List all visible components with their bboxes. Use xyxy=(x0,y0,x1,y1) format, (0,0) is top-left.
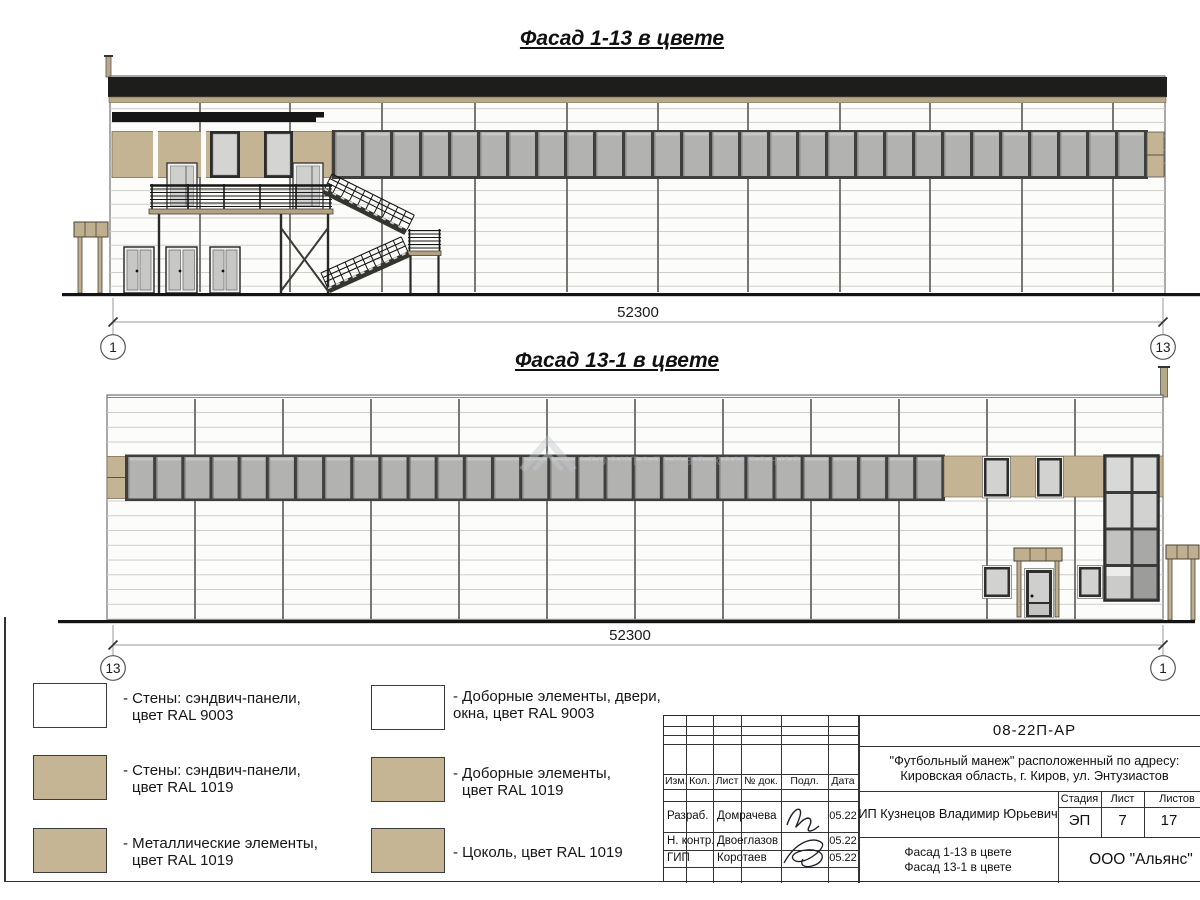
legend-label: - Стены: сэндвич-панели,цвет RAL 9003 xyxy=(123,691,301,724)
facade-1-title: Фасад 1-13 в цвете xyxy=(22,27,1200,51)
facade-1-dimension: 52300 1 13 xyxy=(101,298,1176,359)
mast xyxy=(106,56,111,77)
facade-2-dimension: 52300 13 1 xyxy=(101,625,1176,680)
legend-label: - Доборные элементы, двери,окна, цвет RA… xyxy=(453,689,661,722)
col-header-list: Лист xyxy=(713,774,741,789)
legend-swatch xyxy=(371,828,445,873)
sheet-header: Лист xyxy=(1101,791,1144,807)
ribbon-windows xyxy=(332,130,1164,179)
title-block: 08-22П-АР "Футбольный манеж" расположенн… xyxy=(663,715,1200,882)
legend-label: - Стены: сэндвич-панели,цвет RAL 1019 xyxy=(123,763,301,796)
col-header-kol: Кол. xyxy=(686,774,713,789)
right-canopy xyxy=(1166,545,1199,620)
legend-swatch xyxy=(371,757,445,802)
role-date: 05.22 xyxy=(828,850,858,867)
curtain-wall xyxy=(1104,455,1159,601)
stage-value: ЭП xyxy=(1058,807,1101,837)
client-name: ИП Кузнецов Владимир Юрьевич xyxy=(858,791,1058,837)
balcony-platform xyxy=(149,209,333,214)
facade-1-drawing: 52300 1 13 xyxy=(0,50,1200,360)
role-label: ГИП xyxy=(667,850,717,867)
project-name: "Футбольный манеж" расположенный по адре… xyxy=(858,746,1200,791)
doc-number: 08-22П-АР xyxy=(858,716,1200,746)
black-strip xyxy=(112,112,316,122)
entrance-door xyxy=(1014,548,1062,618)
legend-swatch xyxy=(33,755,107,800)
ground-doors xyxy=(124,247,240,293)
facade-2-building: строительная компания xyxy=(58,367,1199,623)
axis-left-label: 1 xyxy=(109,340,117,355)
dim-text: 52300 xyxy=(617,304,659,321)
role-name: Коротаев xyxy=(717,850,781,867)
stage-header: Стадия xyxy=(1058,791,1101,807)
ground-line xyxy=(58,620,1195,623)
ground-line xyxy=(62,293,1200,296)
roof-band xyxy=(108,77,1167,97)
col-header-doc: № док. xyxy=(741,774,781,789)
roof-tan-strip xyxy=(109,97,1166,103)
sheet-frame-left xyxy=(4,617,6,882)
legend-label: - Доборные элементы,цвет RAL 1019 xyxy=(453,766,611,799)
sheets-value: 17 xyxy=(1144,807,1194,837)
mast xyxy=(1161,367,1168,397)
role-label: Н. контр. xyxy=(667,832,717,850)
watermark-text: строительная компания xyxy=(578,452,802,469)
sheet-name: Фасад 1-13 в цвете Фасад 13-1 в цвете xyxy=(858,837,1058,883)
left-canopy xyxy=(74,222,108,293)
facade-2-drawing: строительная компания 52300 13 1 xyxy=(0,360,1200,682)
legend-swatch xyxy=(33,828,107,873)
axis-right-label: 1 xyxy=(1159,661,1167,676)
axis-right-label: 13 xyxy=(1155,340,1170,355)
signatures xyxy=(781,801,828,881)
sheet-value: 7 xyxy=(1101,807,1144,837)
facade-1-building xyxy=(62,56,1200,296)
drawing-sheet: { "sheet": { "facade1": { "title": "Фаса… xyxy=(0,0,1200,900)
role-name: Домрачева xyxy=(717,801,781,832)
role-name: Двоеглазов xyxy=(717,832,781,850)
ribbon-windows xyxy=(125,455,945,502)
axis-left-label: 13 xyxy=(105,661,120,676)
legend-swatch xyxy=(371,685,445,730)
role-date: 05.22 xyxy=(828,832,858,850)
role-date: 05.22 xyxy=(828,801,858,832)
legend-label: - Цоколь, цвет RAL 1019 xyxy=(453,845,623,862)
legend-swatch xyxy=(33,683,107,728)
sheets-header: Листов xyxy=(1144,791,1200,807)
legend-label: - Металлические элементы,цвет RAL 1019 xyxy=(123,836,318,869)
col-header-data: Дата xyxy=(828,774,858,789)
organization: ООО "Альянс" xyxy=(1058,837,1200,883)
col-header-izm: Изм. xyxy=(665,774,686,789)
role-label: Разраб. xyxy=(667,801,717,832)
col-header-podp: Подл. xyxy=(781,774,828,789)
dim-text: 52300 xyxy=(609,627,651,644)
